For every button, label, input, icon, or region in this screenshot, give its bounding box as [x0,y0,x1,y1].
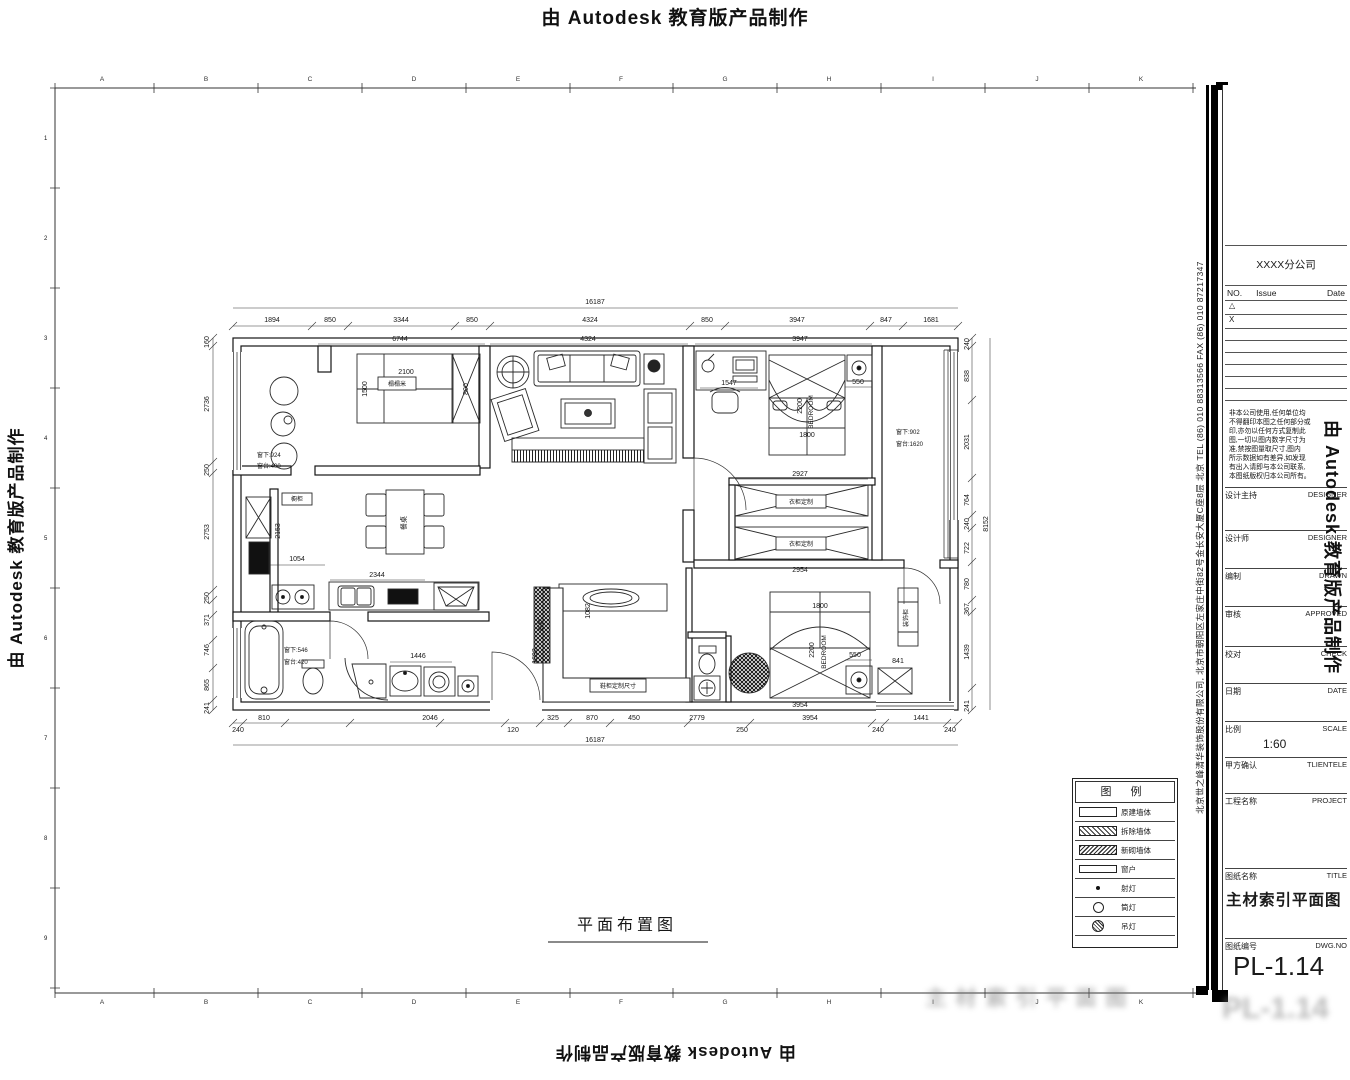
svg-text:16187: 16187 [585,299,605,306]
svg-text:240: 240 [872,727,884,734]
revision-row: △ [1229,301,1235,310]
svg-text:I: I [932,76,934,83]
svg-text:240: 240 [232,727,244,734]
svg-text:6744: 6744 [392,336,408,343]
ruler-numbers-left: 1 2 3 4 5 6 7 8 9 [44,136,48,942]
svg-text:1054: 1054 [289,556,305,563]
legend-title: 图 例 [1075,781,1175,803]
legend-row: 吊灯 [1075,917,1175,936]
spotlight-swatch [1096,886,1100,890]
svg-text:120: 120 [507,727,519,734]
legend-row: 拆除墙体 [1075,822,1175,841]
legend-row: 窗户 [1075,860,1175,879]
svg-text:847: 847 [880,317,892,324]
demolished-wall-swatch [1079,826,1117,836]
legend-row: 原建墙体 [1075,803,1175,822]
dwg-no-value: PL-1.14 [1233,951,1324,982]
company-info-vertical: 北京世之峰清华装饰股份有限公司, 北京市朝阳区左家庄中街82号金长安大厦C座8层… [1194,90,1206,985]
svg-text:窗台:420: 窗台:420 [284,658,308,666]
svg-text:J: J [1035,76,1038,83]
svg-text:H: H [827,999,832,1006]
svg-text:1894: 1894 [264,317,280,324]
svg-text:850: 850 [701,317,713,324]
svg-text:2200: 2200 [797,398,804,414]
svg-text:1446: 1446 [410,653,426,660]
svg-text:餐桌: 餐桌 [399,516,408,530]
ghost-text: 主材索引平面图 [858,982,1203,1008]
svg-text:865: 865 [204,679,211,691]
svg-text:5: 5 [44,536,48,542]
svg-text:A: A [100,76,105,83]
svg-text:1082: 1082 [585,603,592,619]
branch-name: XXXX分公司 [1223,257,1349,272]
svg-text:2046: 2046 [422,715,438,722]
svg-text:2200: 2200 [809,642,816,658]
svg-text:3947: 3947 [789,317,805,324]
svg-text:2: 2 [44,236,48,242]
svg-text:9: 9 [44,936,48,942]
svg-text:B: B [204,999,208,1006]
svg-text:2779: 2779 [689,715,705,722]
revision-row: X [1229,315,1234,324]
svg-text:3954: 3954 [802,715,818,722]
svg-text:装饰柜: 装饰柜 [902,609,910,627]
svg-text:240: 240 [944,727,956,734]
svg-text:D: D [412,76,417,83]
svg-text:H: H [827,76,832,83]
svg-text:F: F [619,76,623,83]
scale-value: 1:60 [1263,737,1286,751]
svg-text:窗下:546: 窗下:546 [284,646,308,654]
svg-text:鞋柜定制尺寸: 鞋柜定制尺寸 [600,682,636,690]
svg-text:窗下:902: 窗下:902 [896,428,920,436]
svg-text:窗台:1620: 窗台:1620 [896,440,924,448]
legend-row: 筒灯 [1075,898,1175,917]
svg-text:B: B [204,76,208,83]
svg-text:2753: 2753 [204,524,211,540]
svg-text:2954: 2954 [792,567,808,574]
autodesk-banner-right: 由 Autodesk 教育版产品制作 [1320,382,1346,712]
svg-text:平面布置图: 平面布置图 [577,916,677,934]
svg-text:D: D [412,999,417,1006]
svg-text:746: 746 [204,644,211,656]
svg-text:3954: 3954 [792,702,808,709]
svg-text:8152: 8152 [983,516,990,532]
svg-text:E: E [516,999,521,1006]
downlight-swatch [1093,902,1104,913]
svg-text:1: 1 [44,136,48,142]
svg-text:K: K [1139,76,1144,83]
legend-row: 射灯 [1075,879,1175,898]
svg-text:2153: 2153 [275,523,282,539]
svg-text:2100: 2100 [398,369,414,376]
svg-text:1800: 1800 [799,432,815,439]
fold-bar-thick [1211,85,1218,990]
svg-text:8: 8 [44,836,48,842]
cad-sheet: { "banner": {"text": "由 Autodesk 教育版产品制作… [0,0,1350,1080]
svg-text:241: 241 [204,702,211,714]
svg-text:371: 371 [204,614,211,626]
svg-text:16187: 16187 [585,737,605,744]
svg-text:1547: 1547 [721,380,737,387]
svg-text:鞋柜: 鞋柜 [537,619,545,631]
svg-text:榻榻米: 榻榻米 [388,380,406,388]
svg-text:7: 7 [44,736,48,742]
field-project: 工程名称PROJECT [1225,793,1347,807]
svg-text:1692: 1692 [532,648,539,664]
svg-text:1439: 1439 [964,644,971,660]
svg-text:G: G [722,999,727,1006]
svg-text:窗台:400: 窗台:400 [257,462,281,470]
svg-text:A: A [100,999,105,1006]
svg-text:838: 838 [964,370,971,382]
svg-text:2344: 2344 [369,572,385,579]
svg-text:241: 241 [964,700,971,712]
svg-text:G: G [722,76,727,83]
legend: 图 例 原建墙体 拆除墙体 新砌墙体 窗户 射灯 筒灯 吊灯 [1072,778,1178,948]
svg-text:F: F [619,999,623,1006]
fold-bar-thin [1206,85,1209,990]
svg-text:衣柜定制: 衣柜定制 [789,540,813,548]
svg-text:4324: 4324 [582,317,598,324]
original-wall-swatch [1079,807,1117,817]
svg-text:2927: 2927 [792,471,808,478]
new-wall-swatch [1079,845,1117,855]
svg-text:250: 250 [204,592,211,604]
field-client: 甲方确认TLIENTELE [1225,757,1347,771]
svg-text:841: 841 [892,658,904,665]
field-sheet-title: 图纸名称TITLE [1225,868,1347,882]
svg-text:4324: 4324 [580,336,596,343]
ruler-letters-top: A B C D E F G H I J K [100,76,1144,83]
svg-text:C: C [308,999,313,1006]
svg-text:2736: 2736 [204,396,211,412]
window-swatch [1079,865,1117,873]
sheet-title-value: 主材索引平面图 [1226,888,1342,910]
svg-text:1441: 1441 [913,715,929,722]
svg-text:850: 850 [466,317,478,324]
svg-text:3: 3 [44,336,48,342]
svg-text:160: 160 [204,336,211,348]
pendant-light-swatch [1092,920,1104,932]
svg-text:764: 764 [964,494,971,506]
svg-text:722: 722 [964,542,971,554]
svg-text:810: 810 [258,715,270,722]
svg-text:240: 240 [964,338,971,350]
revision-header: NO.IssueDate [1227,288,1345,298]
svg-text:450: 450 [628,715,640,722]
svg-text:550: 550 [852,379,864,386]
svg-text:325: 325 [547,715,559,722]
svg-text:衣柜定制: 衣柜定制 [789,498,813,506]
svg-text:E: E [516,76,521,83]
svg-text:4: 4 [44,436,48,442]
field-scale: 比例SCALE [1225,721,1347,735]
svg-text:780: 780 [964,578,971,590]
svg-text:240: 240 [964,518,971,530]
svg-text:1800: 1800 [812,603,828,610]
svg-text:800: 800 [463,383,470,395]
ghost-dwg-no: PL-1.14 [1222,992,1342,1042]
svg-text:550: 550 [849,652,861,659]
svg-text:2031: 2031 [964,434,971,450]
field-dwg-no: 图纸编号DWG.NO [1225,938,1347,952]
svg-text:3947: 3947 [792,336,808,343]
svg-text:橱柜: 橱柜 [291,495,303,503]
svg-text:3344: 3344 [393,317,409,324]
svg-text:6: 6 [44,636,48,642]
svg-text:250: 250 [204,464,211,476]
svg-text:367: 367 [964,603,971,615]
svg-text:1681: 1681 [923,317,939,324]
svg-text:BEDROOM: BEDROOM [808,395,815,429]
plan-title: 平面布置图 [548,916,708,942]
svg-text:850: 850 [324,317,336,324]
svg-text:1500: 1500 [362,381,369,397]
svg-text:窗下:924: 窗下:924 [257,451,281,459]
svg-text:250: 250 [736,727,748,734]
svg-text:BEDROOM: BEDROOM [821,635,828,669]
legend-row: 新砌墙体 [1075,841,1175,860]
svg-text:C: C [308,76,313,83]
svg-text:870: 870 [586,715,598,722]
